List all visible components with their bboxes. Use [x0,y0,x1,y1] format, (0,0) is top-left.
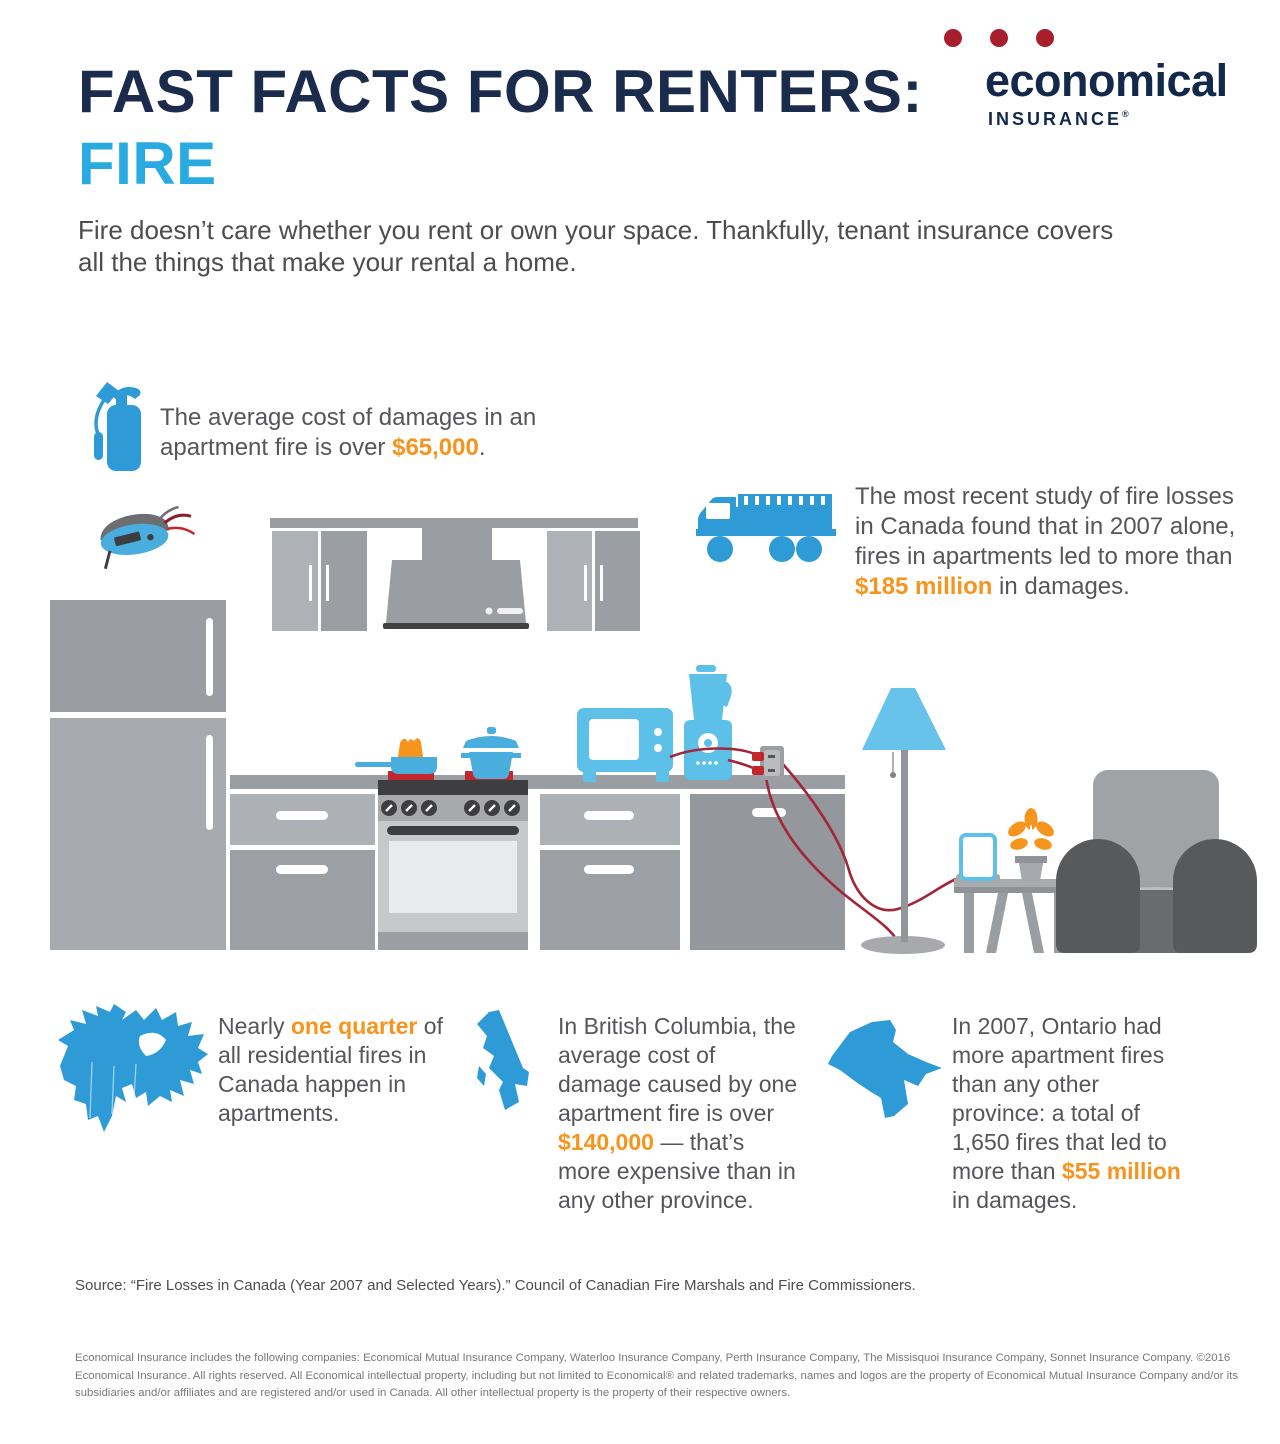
fact-british-columbia: In British Columbia, theaverage cost ofd… [558,1012,797,1215]
fridge [50,600,226,950]
source-citation: Source: “Fire Losses in Canada (Year 200… [75,1277,916,1294]
infographic-page: FAST FACTS FOR RENTERS: FIRE economical … [0,0,1280,1444]
economical-logo-insurance: INSURANCE® [988,110,1129,128]
frying-pan-on-fire-icon [355,738,437,774]
microwave-icon [577,708,673,782]
fact-average-cost: The average cost of damages in anapartme… [160,403,536,463]
british-columbia-map-icon [477,1010,529,1114]
armchair [1056,770,1257,953]
logo-dot-icon [1036,29,1054,47]
power-outlet-icon [752,746,784,780]
stove [378,771,528,950]
economical-logo-wordmark: economical [985,58,1228,103]
blender-icon [684,665,732,780]
range-hood [383,528,529,629]
page-subtitle-fire: FIRE [78,134,217,194]
fact-one-quarter: Nearly one quarter ofall residential fir… [218,1012,443,1128]
intro-paragraph: Fire doesn’t care whether you rent or ow… [78,214,1113,278]
registered-mark: ® [1122,109,1129,119]
phone-charging-icon [956,835,1000,884]
economical-logo-dots [944,29,1054,47]
floor-lamp-icon [861,688,946,954]
legal-fine-print: Economical Insurance includes the follow… [75,1350,1275,1403]
ontario-map-icon [828,1020,942,1118]
kitchen-counter [230,775,845,950]
smoke-detector-icon [97,505,197,569]
page-title: FAST FACTS FOR RENTERS: [78,62,923,122]
kitchen-scene-illustration [0,505,1280,960]
fact-ontario: In 2007, Ontario hadmore apartment fires… [952,1012,1181,1215]
potted-plant-icon [1005,808,1056,881]
logo-dot-icon [944,29,962,47]
logo-dot-icon [990,29,1008,47]
fire-extinguisher-icon [92,378,154,472]
canada-map-icon [50,1002,212,1144]
